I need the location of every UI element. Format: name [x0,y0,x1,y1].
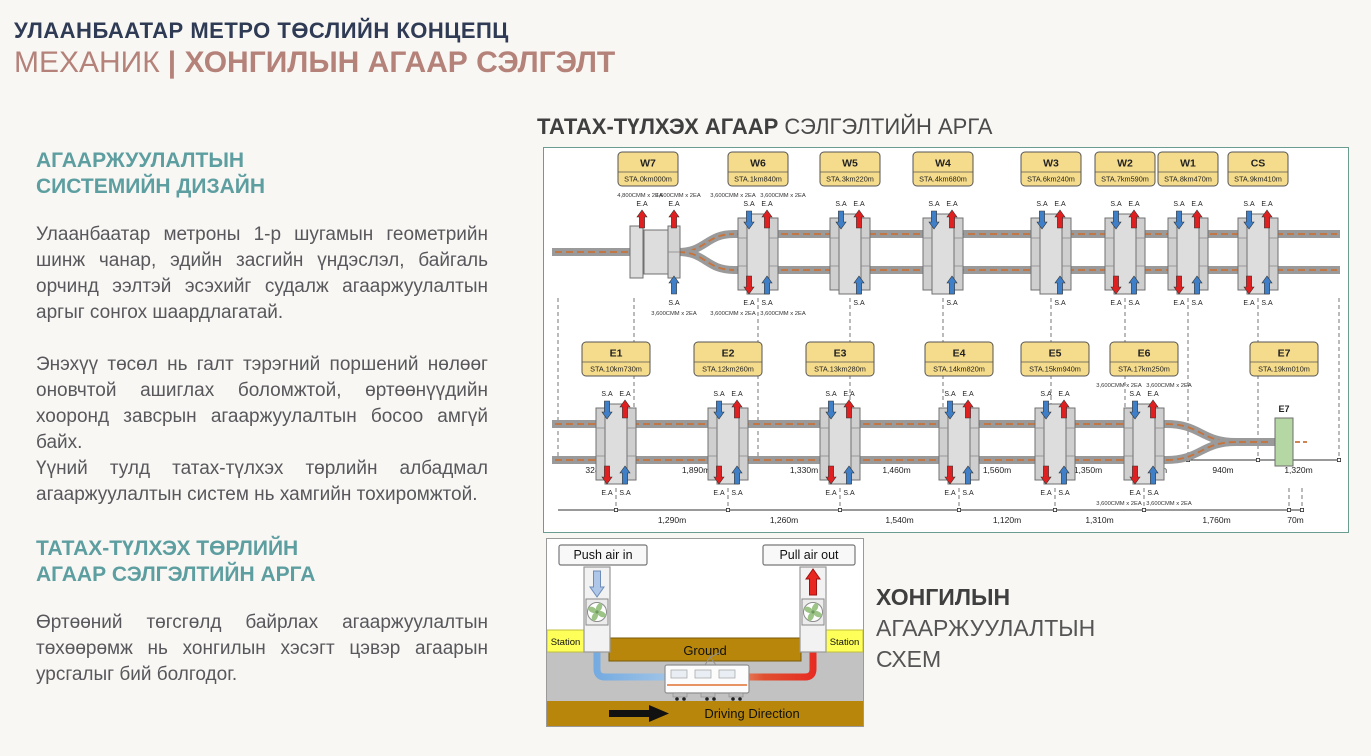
svg-text:W1: W1 [1180,158,1196,170]
driving-direction-bar: Driving Direction [547,701,863,726]
headline-light: МЕХАНИК [14,46,160,79]
ventilation-line-diagram: W7STA.0km000mE.A4,800CMM x 2EAE.A3,600CM… [544,148,1348,532]
station-E7: E7E7STA.19km010m [1250,342,1318,466]
svg-text:E.A: E.A [601,490,613,497]
svg-text:STA.14km820m: STA.14km820m [933,365,985,374]
svg-text:Driving Direction: Driving Direction [704,706,799,721]
svg-text:E7: E7 [1278,348,1291,360]
svg-text:3,600CMM x 2EA: 3,600CMM x 2EA [760,193,806,199]
ground-bar: Ground [609,638,801,661]
svg-text:E.A: E.A [962,391,974,398]
station-CS: CSSTA.9km410mS.AE.AE.AS.A [1228,152,1288,307]
svg-text:S.A: S.A [835,201,847,208]
scheme-caption-line3: СХЕМ [876,644,1095,675]
svg-text:S.A: S.A [1040,391,1052,398]
svg-text:940m: 940m [1212,465,1233,475]
svg-text:S.A: S.A [713,391,725,398]
svg-text:S.A: S.A [1173,201,1185,208]
svg-text:Station: Station [551,637,581,648]
svg-text:S.A: S.A [601,391,613,398]
svg-text:3,600CMM x 2EA: 3,600CMM x 2EA [1096,383,1142,389]
svg-text:S.A: S.A [761,300,773,307]
svg-text:E1: E1 [610,348,623,360]
svg-text:CS: CS [1251,158,1266,170]
svg-text:E2: E2 [722,348,735,360]
svg-text:1,260m: 1,260m [770,515,798,525]
svg-text:W7: W7 [640,158,656,170]
svg-text:3,600CMM x 2EA: 3,600CMM x 2EA [1146,383,1192,389]
section2-heading-line1: ТАТАХ-ТҮЛХЭХ ТӨРЛИЙН [36,536,488,562]
svg-text:E.A: E.A [1058,391,1070,398]
svg-text:E.A: E.A [944,490,956,497]
svg-text:3,600CMM x 2EA: 3,600CMM x 2EA [651,311,697,317]
pull-air-out-label: Pull air out [763,545,855,565]
svg-text:Push air in: Push air in [573,548,632,562]
station-W4: W4STA.4km680mS.AE.AS.A [913,152,973,307]
svg-text:Pull air out: Pull air out [779,548,839,562]
svg-text:STA.19km010m: STA.19km010m [1258,365,1310,374]
svg-text:S.A: S.A [853,300,865,307]
svg-text:S.A: S.A [1110,201,1122,208]
station-W1: W1STA.8km470mS.AE.AE.AS.A [1158,152,1218,307]
diagram-row-east: E1STA.10km730mS.AE.AE.AS.AE2STA.12km260m… [552,342,1318,525]
left-text-block-2: ТАТАХ-ТҮЛХЭХ ТӨРЛИЙН АГААР СЭЛГЭЛТИЙН АР… [36,536,488,700]
slide: УЛААНБААТАР МЕТРО ТӨСЛИЙН КОНЦЕПЦ МЕХАНИ… [0,0,1371,756]
svg-text:W4: W4 [935,158,951,170]
svg-text:S.A: S.A [731,490,743,497]
tunnel-ventilation-scheme: GroundStationStationPush air inPull air … [547,539,863,726]
svg-text:E.A: E.A [668,201,680,208]
svg-text:1,120m: 1,120m [993,515,1021,525]
svg-text:S.A: S.A [668,300,680,307]
svg-text:S.A: S.A [1129,391,1141,398]
svg-text:STA.4km680m: STA.4km680m [919,175,967,184]
diagram-title: ТАТАХ-ТҮЛХЭХ АГААРСЭЛГЭЛТИЙН АРГА [537,114,992,140]
svg-text:W5: W5 [842,158,858,170]
svg-text:E.A: E.A [843,391,855,398]
svg-text:STA.12km260m: STA.12km260m [702,365,754,374]
svg-text:STA.1km840m: STA.1km840m [734,175,782,184]
svg-text:E.A: E.A [1054,201,1066,208]
svg-text:STA.0km000m: STA.0km000m [624,175,672,184]
scheme-caption-line2: АГААРЖУУЛАЛТЫН [876,613,1095,644]
svg-text:E.A: E.A [731,391,743,398]
svg-text:1,350m: 1,350m [1074,465,1102,475]
svg-text:E3: E3 [834,348,847,360]
svg-text:E4: E4 [953,348,966,360]
svg-text:E.A: E.A [1173,300,1185,307]
svg-text:S.A: S.A [1147,490,1159,497]
station-W5: W5STA.3km220mS.AE.AS.A [820,152,880,307]
station-W3: W3STA.6km240mS.AE.AS.A [1021,152,1081,307]
svg-text:S.A: S.A [843,490,855,497]
svg-text:S.A: S.A [1243,201,1255,208]
svg-text:1,540m: 1,540m [885,515,913,525]
svg-text:70m: 70m [1287,515,1304,525]
svg-text:S.A: S.A [619,490,631,497]
svg-text:E.A: E.A [1147,391,1159,398]
svg-text:1,760m: 1,760m [1202,515,1230,525]
svg-text:STA.8km470m: STA.8km470m [1164,175,1212,184]
svg-text:E.A: E.A [743,300,755,307]
svg-text:W2: W2 [1117,158,1133,170]
svg-text:E.A: E.A [1040,490,1052,497]
svg-text:1,560m: 1,560m [983,465,1011,475]
diagram-title-regular: СЭЛГЭЛТИЙН АРГА [784,114,992,139]
svg-text:STA.13km280m: STA.13km280m [814,365,866,374]
svg-text:E.A: E.A [1191,201,1203,208]
svg-text:S.A: S.A [1191,300,1203,307]
left-text-block-1: АГААРЖУУЛАЛТЫН СИСТЕМИЙН ДИЗАЙН Улаанбаа… [36,148,488,520]
svg-text:STA.10km730m: STA.10km730m [590,365,642,374]
svg-text:E.A: E.A [853,201,865,208]
svg-text:S.A: S.A [1054,300,1066,307]
svg-text:1,890m: 1,890m [682,465,710,475]
svg-text:1,460m: 1,460m [882,465,910,475]
svg-text:S.A: S.A [743,201,755,208]
svg-text:1,330m: 1,330m [790,465,818,475]
push-air-in-label: Push air in [559,545,647,565]
svg-text:3,600CMM x 2EA: 3,600CMM x 2EA [1096,501,1142,507]
svg-text:S.A: S.A [946,300,958,307]
section1-para1: Улаанбаатар метроны 1-р шугамын геометри… [36,222,488,326]
svg-text:S.A: S.A [1128,300,1140,307]
svg-text:E.A: E.A [713,490,725,497]
svg-text:1,310m: 1,310m [1085,515,1113,525]
ventilation-line-diagram-panel: W7STA.0km000mE.A4,800CMM x 2EAE.A3,600CM… [543,147,1349,533]
svg-text:E.A: E.A [1129,490,1141,497]
svg-text:S.A: S.A [1036,201,1048,208]
station-W2: W2STA.7km590mS.AE.AE.AS.A [1095,152,1155,307]
svg-text:E.A: E.A [946,201,958,208]
station-label-left: Station [547,630,584,652]
slide-headline: МЕХАНИК| ХОНГИЛЫН АГААР СЭЛГЭЛТ [14,46,615,80]
section1-heading-line1: АГААРЖУУЛАЛТЫН [36,148,488,174]
svg-text:STA.6km240m: STA.6km240m [1027,175,1075,184]
svg-text:E.A: E.A [636,201,648,208]
tunnel-ventilation-scheme-panel: GroundStationStationPush air inPull air … [546,538,864,727]
svg-text:E.A: E.A [761,201,773,208]
svg-text:3,600CMM x 2EA: 3,600CMM x 2EA [1146,501,1192,507]
section2-heading-line2: АГААР СЭЛГЭЛТИЙН АРГА [36,562,488,588]
section1-para2-line2: Үүний тулд татах-түлхэх төрлийн албадмал… [36,456,488,508]
svg-text:STA.15km940m: STA.15km940m [1029,365,1081,374]
svg-text:E.A: E.A [1128,201,1140,208]
svg-text:E.A: E.A [1261,201,1273,208]
svg-text:S.A: S.A [1058,490,1070,497]
svg-text:3,600CMM x 2EA: 3,600CMM x 2EA [760,311,806,317]
svg-text:S.A: S.A [1261,300,1273,307]
svg-text:E.A: E.A [1110,300,1122,307]
svg-text:STA.7km590m: STA.7km590m [1101,175,1149,184]
section1-para2: Энэхүү төсөл нь галт тэрэгний поршений н… [36,352,488,508]
svg-text:S.A: S.A [825,391,837,398]
diagram-title-bold: ТАТАХ-ТҮЛХЭХ АГААР [537,114,778,139]
svg-text:S.A: S.A [962,490,974,497]
svg-text:S.A: S.A [928,201,940,208]
section2-heading: ТАТАХ-ТҮЛХЭХ ТӨРЛИЙН АГААР СЭЛГЭЛТИЙН АР… [36,536,488,588]
section1-heading: АГААРЖУУЛАЛТЫН СИСТЕМИЙН ДИЗАЙН [36,148,488,200]
svg-text:E.A: E.A [619,391,631,398]
slide-kicker: УЛААНБААТАР МЕТРО ТӨСЛИЙН КОНЦЕПЦ [14,18,509,44]
svg-text:3,600CMM x 2EA: 3,600CMM x 2EA [710,193,756,199]
svg-text:3,600CMM x 2EA: 3,600CMM x 2EA [710,311,756,317]
svg-text:E7: E7 [1278,404,1289,414]
svg-text:S.A: S.A [944,391,956,398]
section1-para2-line1: Энэхүү төсөл нь галт тэрэгний поршений н… [36,352,488,456]
station-label-right: Station [826,630,863,652]
svg-text:3,600CMM x 2EA: 3,600CMM x 2EA [655,193,701,199]
svg-text:STA.17km250m: STA.17km250m [1118,365,1170,374]
svg-text:W3: W3 [1043,158,1059,170]
svg-text:E.A: E.A [825,490,837,497]
svg-text:Station: Station [830,637,860,648]
scheme-caption: ХОНГИЛЫН АГААРЖУУЛАЛТЫН СХЕМ [876,582,1095,675]
svg-text:1,290m: 1,290m [658,515,686,525]
svg-text:STA.9km410m: STA.9km410m [1234,175,1282,184]
svg-text:E.A: E.A [1243,300,1255,307]
svg-text:E6: E6 [1138,348,1151,360]
headline-bold: | ХОНГИЛЫН АГААР СЭЛГЭЛТ [168,46,616,79]
svg-text:W6: W6 [750,158,766,170]
section1-heading-line2: СИСТЕМИЙН ДИЗАЙН [36,174,488,200]
scheme-caption-line1: ХОНГИЛЫН [876,582,1095,613]
svg-text:E5: E5 [1049,348,1062,360]
section2-para: Өртөөний төгсгөлд байрлах агааржуулалтын… [36,610,488,688]
svg-text:Ground: Ground [683,643,726,658]
svg-text:STA.3km220m: STA.3km220m [826,175,874,184]
